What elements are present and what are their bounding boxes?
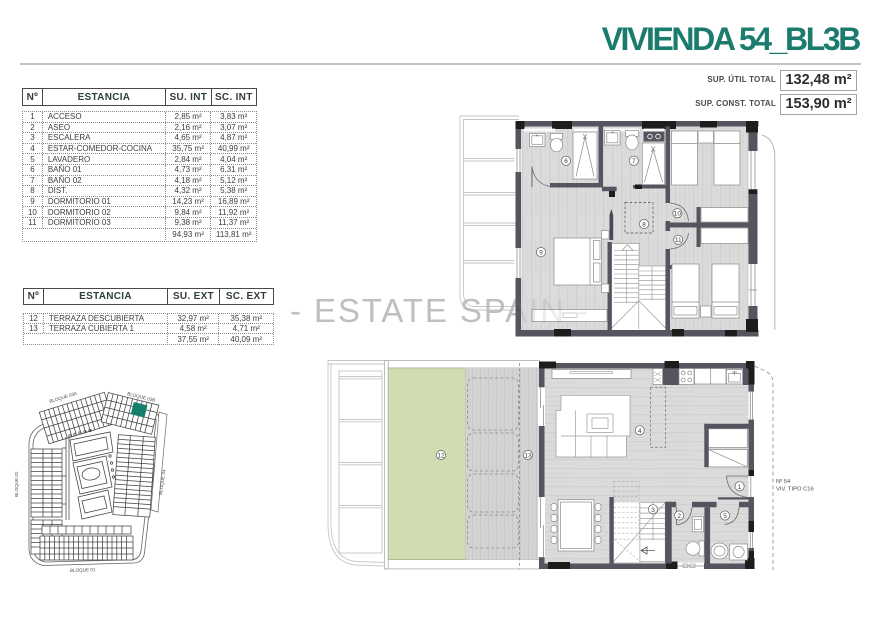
svg-text:BLOQUE 01: BLOQUE 01 <box>70 567 96 573</box>
svg-text:Nº 54: Nº 54 <box>776 478 791 485</box>
svg-text:3: 3 <box>651 507 655 514</box>
svg-text:12: 12 <box>437 453 445 460</box>
svg-text:4: 4 <box>638 428 642 435</box>
svg-text:2: 2 <box>677 513 681 520</box>
svg-text:VIV. TIPO C16: VIV. TIPO C16 <box>776 487 814 493</box>
svg-text:6: 6 <box>564 158 568 165</box>
svg-text:9: 9 <box>539 250 543 257</box>
svg-text:13: 13 <box>524 453 532 460</box>
svg-text:10: 10 <box>674 211 682 218</box>
svg-text:5: 5 <box>723 513 727 520</box>
svg-text:1: 1 <box>738 484 742 491</box>
svg-text:7: 7 <box>632 158 636 165</box>
svg-text:8: 8 <box>642 222 646 229</box>
svg-text:BLOQUE 02: BLOQUE 02 <box>14 471 19 497</box>
svg-text:11: 11 <box>675 237 682 244</box>
